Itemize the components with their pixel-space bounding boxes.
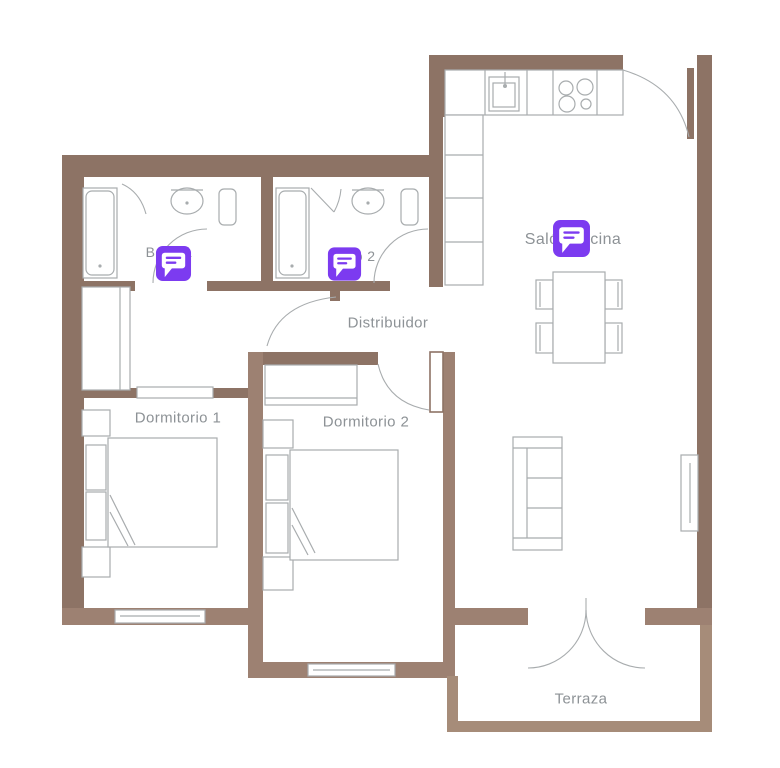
pillow — [86, 445, 106, 490]
toilet-2 — [401, 189, 418, 225]
comment-bubble-icon — [327, 246, 362, 282]
wall-bathroom-divider — [261, 177, 273, 281]
dining-area — [536, 272, 622, 363]
chair — [536, 280, 553, 309]
sofa — [513, 437, 562, 550]
kitchen-door-leaf — [687, 68, 694, 139]
bed-1 — [108, 438, 217, 547]
wall-dorm2-top — [263, 352, 378, 365]
kitchen-counter-top — [445, 70, 623, 115]
bathroom2-inner-door-arc — [334, 189, 341, 212]
room-label-dormitorio-1: Dormitorio 1 — [135, 410, 222, 427]
terrace-door-right-arc — [586, 610, 645, 668]
washbasin-1 — [171, 188, 203, 214]
chair — [605, 280, 622, 309]
wall-salon-bottom-right — [645, 608, 712, 625]
dining-table — [553, 272, 605, 363]
floor-plan: Baño 1 Baño 2 Distribuidor Dormitorio 1 … — [0, 0, 780, 768]
chair — [536, 323, 553, 353]
pillow — [266, 503, 288, 553]
nightstand — [263, 420, 293, 448]
comment-marker-bano-2[interactable] — [327, 246, 362, 282]
dorm1-furniture — [82, 410, 217, 577]
floor-plan-drawing — [0, 0, 780, 768]
room-label-distribuidor: Distribuidor — [348, 315, 429, 332]
room-label-terraza: Terraza — [555, 691, 608, 708]
chair — [605, 323, 622, 353]
nightstand — [82, 547, 110, 577]
dorm2-furniture — [263, 365, 398, 590]
bathtub-1-inner — [86, 191, 114, 275]
bathroom1-inner-door-arc — [122, 184, 146, 214]
wall-top-left-section — [62, 155, 443, 177]
wall-bathrooms-bottom-c — [273, 281, 390, 291]
terrace-door-left-arc — [528, 610, 586, 668]
distribuidor-door-arc — [267, 297, 336, 346]
wall-top-right-section — [429, 55, 623, 70]
bed-2 — [290, 450, 398, 560]
bathtub-2-inner — [279, 191, 306, 275]
comment-bubble-icon — [155, 245, 192, 282]
wall-divider-vertical — [429, 112, 443, 287]
toilet-1 — [219, 189, 236, 225]
wall-salon-bottom-left — [443, 608, 528, 625]
comment-bubble-icon — [552, 219, 591, 258]
wall-dorm2-right — [443, 352, 455, 678]
wall-terrace-bottom — [447, 721, 712, 732]
wall-stub-distribuidor — [330, 291, 340, 301]
pillow — [266, 455, 288, 500]
pillow — [86, 492, 106, 540]
comment-marker-salon-cocina[interactable] — [552, 219, 591, 258]
comment-marker-bano-1[interactable] — [155, 245, 192, 282]
nightstand — [82, 410, 110, 436]
hall-closet — [82, 287, 130, 390]
kitchen-fixtures — [445, 70, 623, 285]
washbasin-2 — [352, 188, 384, 214]
closet — [82, 287, 130, 390]
bathroom2-entry-door-arc — [374, 229, 428, 283]
dorm1-sliding-door-leaf — [137, 387, 213, 398]
dorm2-door-leaf — [430, 352, 443, 412]
nightstand — [263, 557, 293, 590]
wall-dorm1-dorm2-divider — [248, 352, 263, 678]
wall-bathrooms-bottom-b — [207, 281, 273, 291]
kitchen-door-arc — [623, 70, 689, 137]
wardrobe — [265, 365, 357, 405]
room-label-dormitorio-2: Dormitorio 2 — [323, 414, 410, 431]
dorm2-door-arc — [378, 364, 429, 410]
bathroom2-inner-door-leaf — [311, 188, 334, 212]
kitchen-counter-left — [445, 115, 483, 285]
wall-terrace-right — [700, 625, 712, 732]
wall-right-outer — [697, 55, 712, 625]
